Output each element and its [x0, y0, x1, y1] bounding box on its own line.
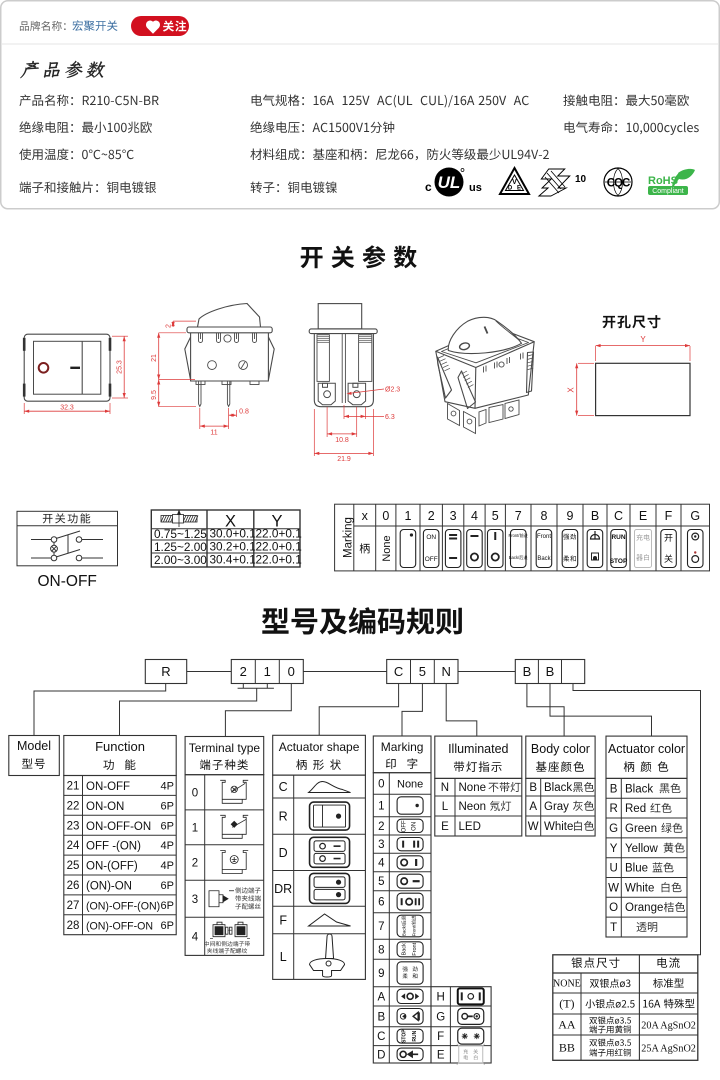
- svg-text:Marking: Marking: [381, 740, 424, 754]
- svg-text:OFF: OFF: [425, 556, 438, 563]
- svg-text:2: 2: [240, 664, 247, 679]
- svg-text:NONE: NONE: [553, 979, 581, 990]
- svg-text:22.0+0.1: 22.0+0.1: [256, 540, 302, 554]
- svg-text:25.3: 25.3: [117, 360, 124, 374]
- svg-text:RoHS: RoHS: [648, 175, 678, 187]
- svg-text:G: G: [690, 509, 700, 523]
- svg-text:Red: Red: [625, 803, 646, 815]
- svg-text:Gray: Gray: [544, 801, 569, 813]
- svg-text:0: 0: [288, 664, 295, 679]
- svg-text:L: L: [442, 801, 449, 813]
- svg-text:5: 5: [492, 509, 499, 523]
- svg-text:D: D: [377, 1049, 385, 1061]
- svg-text:5: 5: [419, 664, 426, 679]
- svg-text:H: H: [437, 991, 445, 1003]
- svg-text:32.3: 32.3: [60, 405, 74, 412]
- svg-text:W: W: [528, 821, 539, 833]
- svg-text:Marking: Marking: [343, 517, 355, 558]
- svg-text:Neon: Neon: [459, 801, 487, 813]
- svg-text:E: E: [437, 1049, 445, 1061]
- svg-text:30.2+0.1: 30.2+0.1: [210, 540, 256, 554]
- svg-text:(ON)-ON: (ON)-ON: [86, 881, 132, 893]
- svg-text:ON: ON: [426, 534, 436, 541]
- svg-text:A: A: [377, 991, 385, 1003]
- svg-text:White: White: [625, 882, 654, 894]
- svg-text:C: C: [279, 780, 288, 794]
- svg-text:AA: AA: [558, 1018, 576, 1032]
- svg-text:4P: 4P: [161, 840, 174, 852]
- svg-text:Orange: Orange: [625, 902, 663, 914]
- svg-text:Body color: Body color: [531, 742, 590, 756]
- svg-text:G: G: [609, 823, 618, 835]
- svg-text:B: B: [523, 664, 532, 679]
- svg-text:Yellow: Yellow: [625, 843, 659, 855]
- svg-text:G: G: [436, 1011, 445, 1023]
- svg-text:B: B: [610, 783, 618, 795]
- svg-text:F: F: [665, 509, 673, 523]
- svg-text:Terminal type: Terminal type: [189, 741, 261, 755]
- svg-text:D: D: [508, 186, 513, 192]
- svg-text:STOP: STOP: [402, 1029, 408, 1043]
- svg-text:28: 28: [67, 920, 80, 932]
- svg-text:7: 7: [515, 509, 522, 523]
- svg-text:Black: Black: [544, 782, 572, 794]
- svg-text:L: L: [280, 950, 287, 964]
- svg-text:22.0+0.1: 22.0+0.1: [256, 527, 302, 541]
- svg-text:1.25~2.00: 1.25~2.00: [154, 540, 207, 554]
- svg-text:30.0+0.1: 30.0+0.1: [210, 527, 256, 541]
- svg-text:OFF: OFF: [402, 820, 408, 832]
- svg-text:C: C: [614, 509, 623, 523]
- svg-text:6.3: 6.3: [385, 414, 395, 421]
- svg-text:Green: Green: [625, 823, 657, 835]
- svg-text:c: c: [425, 180, 432, 194]
- svg-text:Compliant: Compliant: [652, 188, 684, 195]
- svg-text:1: 1: [404, 509, 411, 523]
- svg-text:us: us: [469, 182, 482, 194]
- svg-text:3: 3: [192, 894, 198, 906]
- svg-text:9: 9: [567, 509, 574, 523]
- svg-text:26: 26: [67, 880, 80, 892]
- svg-text:None: None: [397, 779, 423, 791]
- svg-text:2.00~3.00: 2.00~3.00: [154, 553, 207, 567]
- svg-text:0.8: 0.8: [239, 409, 249, 416]
- svg-text:B: B: [546, 664, 555, 679]
- svg-text:10.8: 10.8: [335, 437, 349, 444]
- svg-text:25: 25: [67, 860, 80, 872]
- svg-text:RUN: RUN: [611, 534, 625, 541]
- svg-text:21: 21: [67, 781, 80, 793]
- svg-text:8: 8: [541, 509, 548, 523]
- svg-text:UL: UL: [438, 173, 461, 192]
- svg-text:4: 4: [192, 931, 199, 943]
- svg-text:2: 2: [428, 509, 435, 523]
- svg-text:Front: Front: [412, 942, 418, 955]
- svg-text:BB: BB: [559, 1041, 575, 1055]
- svg-text:4: 4: [378, 858, 385, 870]
- svg-text:F: F: [279, 914, 287, 928]
- svg-text:1: 1: [378, 801, 384, 813]
- svg-text:U: U: [609, 863, 617, 875]
- svg-text:Model: Model: [17, 739, 51, 753]
- svg-text:Front: Front: [537, 534, 551, 540]
- svg-text:ON-OFF-ON: ON-OFF-ON: [86, 821, 151, 833]
- svg-text:None: None: [381, 535, 393, 561]
- svg-text:0: 0: [382, 509, 389, 523]
- svg-text:(ON)-OFF-(ON): (ON)-OFF-(ON): [86, 900, 160, 912]
- svg-text:8: 8: [378, 944, 384, 956]
- svg-text:O: O: [609, 902, 618, 914]
- svg-text:30.4+0.1: 30.4+0.1: [210, 553, 256, 567]
- svg-text:Black: Black: [625, 783, 653, 795]
- svg-text:LED: LED: [459, 821, 481, 833]
- svg-text:A: A: [529, 801, 537, 813]
- svg-text:Y: Y: [610, 843, 618, 855]
- svg-text:E: E: [441, 821, 449, 833]
- svg-text:E: E: [517, 186, 521, 192]
- svg-text:4: 4: [471, 509, 478, 523]
- svg-text:Illuminated: Illuminated: [448, 742, 508, 756]
- svg-text:1: 1: [264, 664, 271, 679]
- svg-text:6P: 6P: [161, 820, 174, 832]
- svg-text:ON-ON: ON-ON: [86, 801, 124, 813]
- svg-text:None: None: [459, 782, 487, 794]
- svg-text:4P: 4P: [161, 781, 174, 793]
- svg-text:R: R: [279, 810, 288, 824]
- svg-text:Blue: Blue: [625, 863, 648, 875]
- svg-text:OFF -(ON): OFF -(ON): [86, 841, 141, 853]
- svg-text:23: 23: [67, 820, 80, 832]
- svg-text:Actuator color: Actuator color: [608, 742, 685, 756]
- svg-text:Actuator shape: Actuator shape: [279, 740, 360, 754]
- svg-text:20A AgSnO2: 20A AgSnO2: [641, 1021, 696, 1032]
- svg-text:Back: Back: [402, 943, 408, 955]
- svg-text:24: 24: [67, 840, 80, 852]
- svg-text:27: 27: [67, 900, 80, 912]
- svg-text:ON-OFF: ON-OFF: [37, 573, 96, 590]
- svg-text:10: 10: [575, 174, 587, 185]
- svg-text:W: W: [608, 882, 619, 894]
- svg-text:N: N: [442, 664, 451, 679]
- svg-text:3: 3: [378, 839, 384, 851]
- svg-text:D: D: [279, 846, 288, 860]
- svg-text:2: 2: [192, 858, 198, 870]
- svg-text:Y: Y: [640, 335, 646, 344]
- svg-text:T: T: [610, 922, 617, 934]
- svg-text:B: B: [529, 782, 537, 794]
- svg-text:DR: DR: [274, 882, 292, 896]
- svg-text:E: E: [639, 509, 647, 523]
- svg-text:Front/前进: Front/前进: [411, 915, 418, 936]
- svg-text:Ø2.3: Ø2.3: [385, 386, 400, 393]
- svg-text:B: B: [377, 1011, 385, 1023]
- svg-text:Back/后退: Back/后退: [401, 915, 408, 936]
- svg-text:3: 3: [450, 509, 457, 523]
- svg-text:2: 2: [166, 324, 173, 328]
- svg-text:9.5: 9.5: [151, 390, 158, 400]
- svg-text:B: B: [591, 509, 599, 523]
- svg-text:Front/前进: Front/前进: [509, 532, 529, 539]
- svg-text:X: X: [567, 387, 576, 393]
- svg-text:N: N: [441, 782, 449, 794]
- svg-text:STOP: STOP: [610, 558, 628, 565]
- svg-text:25A AgSnO2: 25A AgSnO2: [641, 1044, 696, 1055]
- svg-text:5: 5: [378, 876, 384, 888]
- svg-text:0.75~1.25: 0.75~1.25: [154, 527, 207, 541]
- svg-text:R: R: [161, 664, 170, 679]
- svg-text:6: 6: [378, 897, 384, 909]
- svg-text:6P: 6P: [161, 920, 174, 932]
- svg-text:Back/后退: Back/后退: [509, 554, 529, 561]
- svg-text:0: 0: [192, 787, 198, 799]
- svg-text:ON-(OFF): ON-(OFF): [86, 861, 138, 873]
- svg-text:11: 11: [210, 430, 217, 437]
- svg-text:ON-OFF: ON-OFF: [86, 781, 130, 793]
- svg-text:F: F: [437, 1031, 444, 1043]
- svg-text:(ON)-OFF-ON: (ON)-OFF-ON: [86, 920, 153, 932]
- svg-text:White: White: [544, 821, 573, 833]
- svg-text:C: C: [394, 664, 403, 679]
- svg-text:21.9: 21.9: [337, 456, 351, 463]
- svg-text:x: x: [362, 509, 369, 523]
- svg-text:0: 0: [378, 779, 384, 791]
- svg-text:6P: 6P: [161, 800, 174, 812]
- svg-text:2: 2: [378, 821, 384, 833]
- svg-text:CQC: CQC: [607, 178, 630, 190]
- svg-text:9: 9: [378, 968, 384, 980]
- svg-text:6P: 6P: [161, 900, 174, 912]
- svg-text:Function: Function: [95, 739, 145, 754]
- svg-text:6P: 6P: [161, 880, 174, 892]
- svg-text:22: 22: [67, 800, 80, 812]
- svg-text:C: C: [377, 1031, 385, 1043]
- svg-text:ON: ON: [412, 822, 418, 831]
- svg-text:R: R: [609, 803, 617, 815]
- svg-text:21: 21: [151, 354, 158, 362]
- svg-text:1: 1: [192, 822, 198, 834]
- svg-text:(T): (T): [559, 997, 574, 1011]
- svg-text:RUN: RUN: [412, 1030, 418, 1041]
- svg-text:4P: 4P: [161, 860, 174, 872]
- svg-text:Back: Back: [537, 556, 551, 562]
- svg-text:7: 7: [378, 921, 384, 933]
- svg-text:22.0+0.1: 22.0+0.1: [256, 553, 302, 567]
